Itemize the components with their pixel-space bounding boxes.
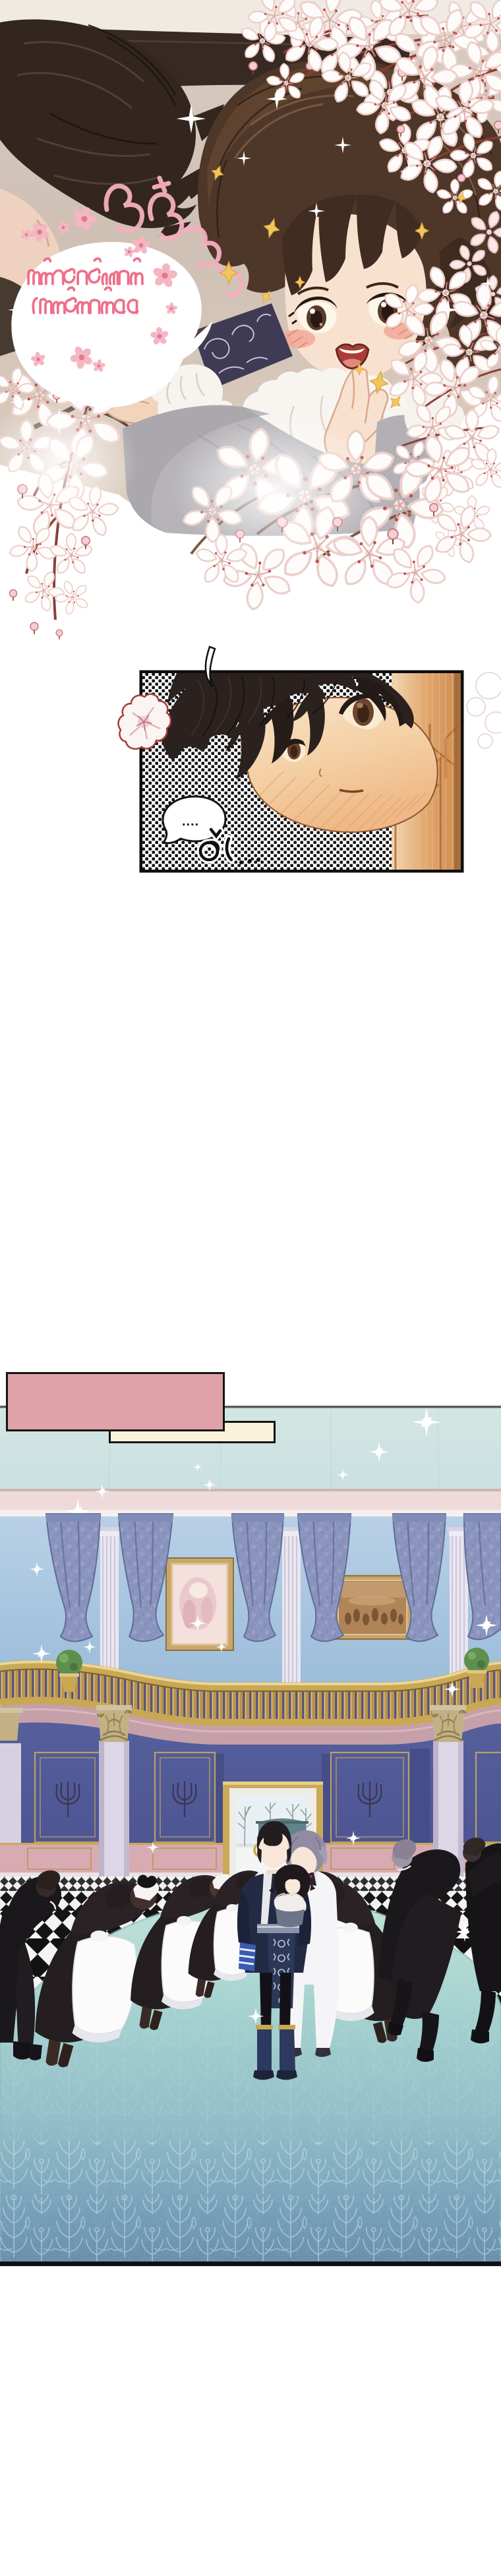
svg-text:....: .... xyxy=(182,814,199,829)
